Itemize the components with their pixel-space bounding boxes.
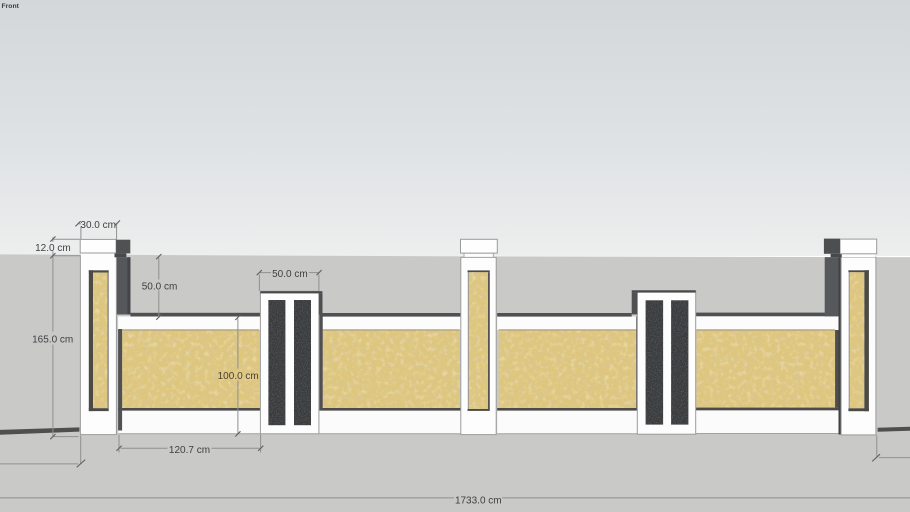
- svg-text:120.7 cm: 120.7 cm: [169, 445, 210, 456]
- svg-text:165.0 cm: 165.0 cm: [32, 335, 73, 346]
- svg-text:100.0 cm: 100.0 cm: [218, 371, 259, 382]
- svg-text:Front: Front: [2, 3, 20, 10]
- svg-text:12.0 cm: 12.0 cm: [35, 243, 71, 254]
- svg-text:50.0 cm: 50.0 cm: [272, 269, 308, 280]
- svg-text:1733.0 cm: 1733.0 cm: [455, 496, 502, 507]
- svg-text:30.0 cm: 30.0 cm: [80, 220, 116, 231]
- svg-text:50.0 cm: 50.0 cm: [142, 281, 178, 292]
